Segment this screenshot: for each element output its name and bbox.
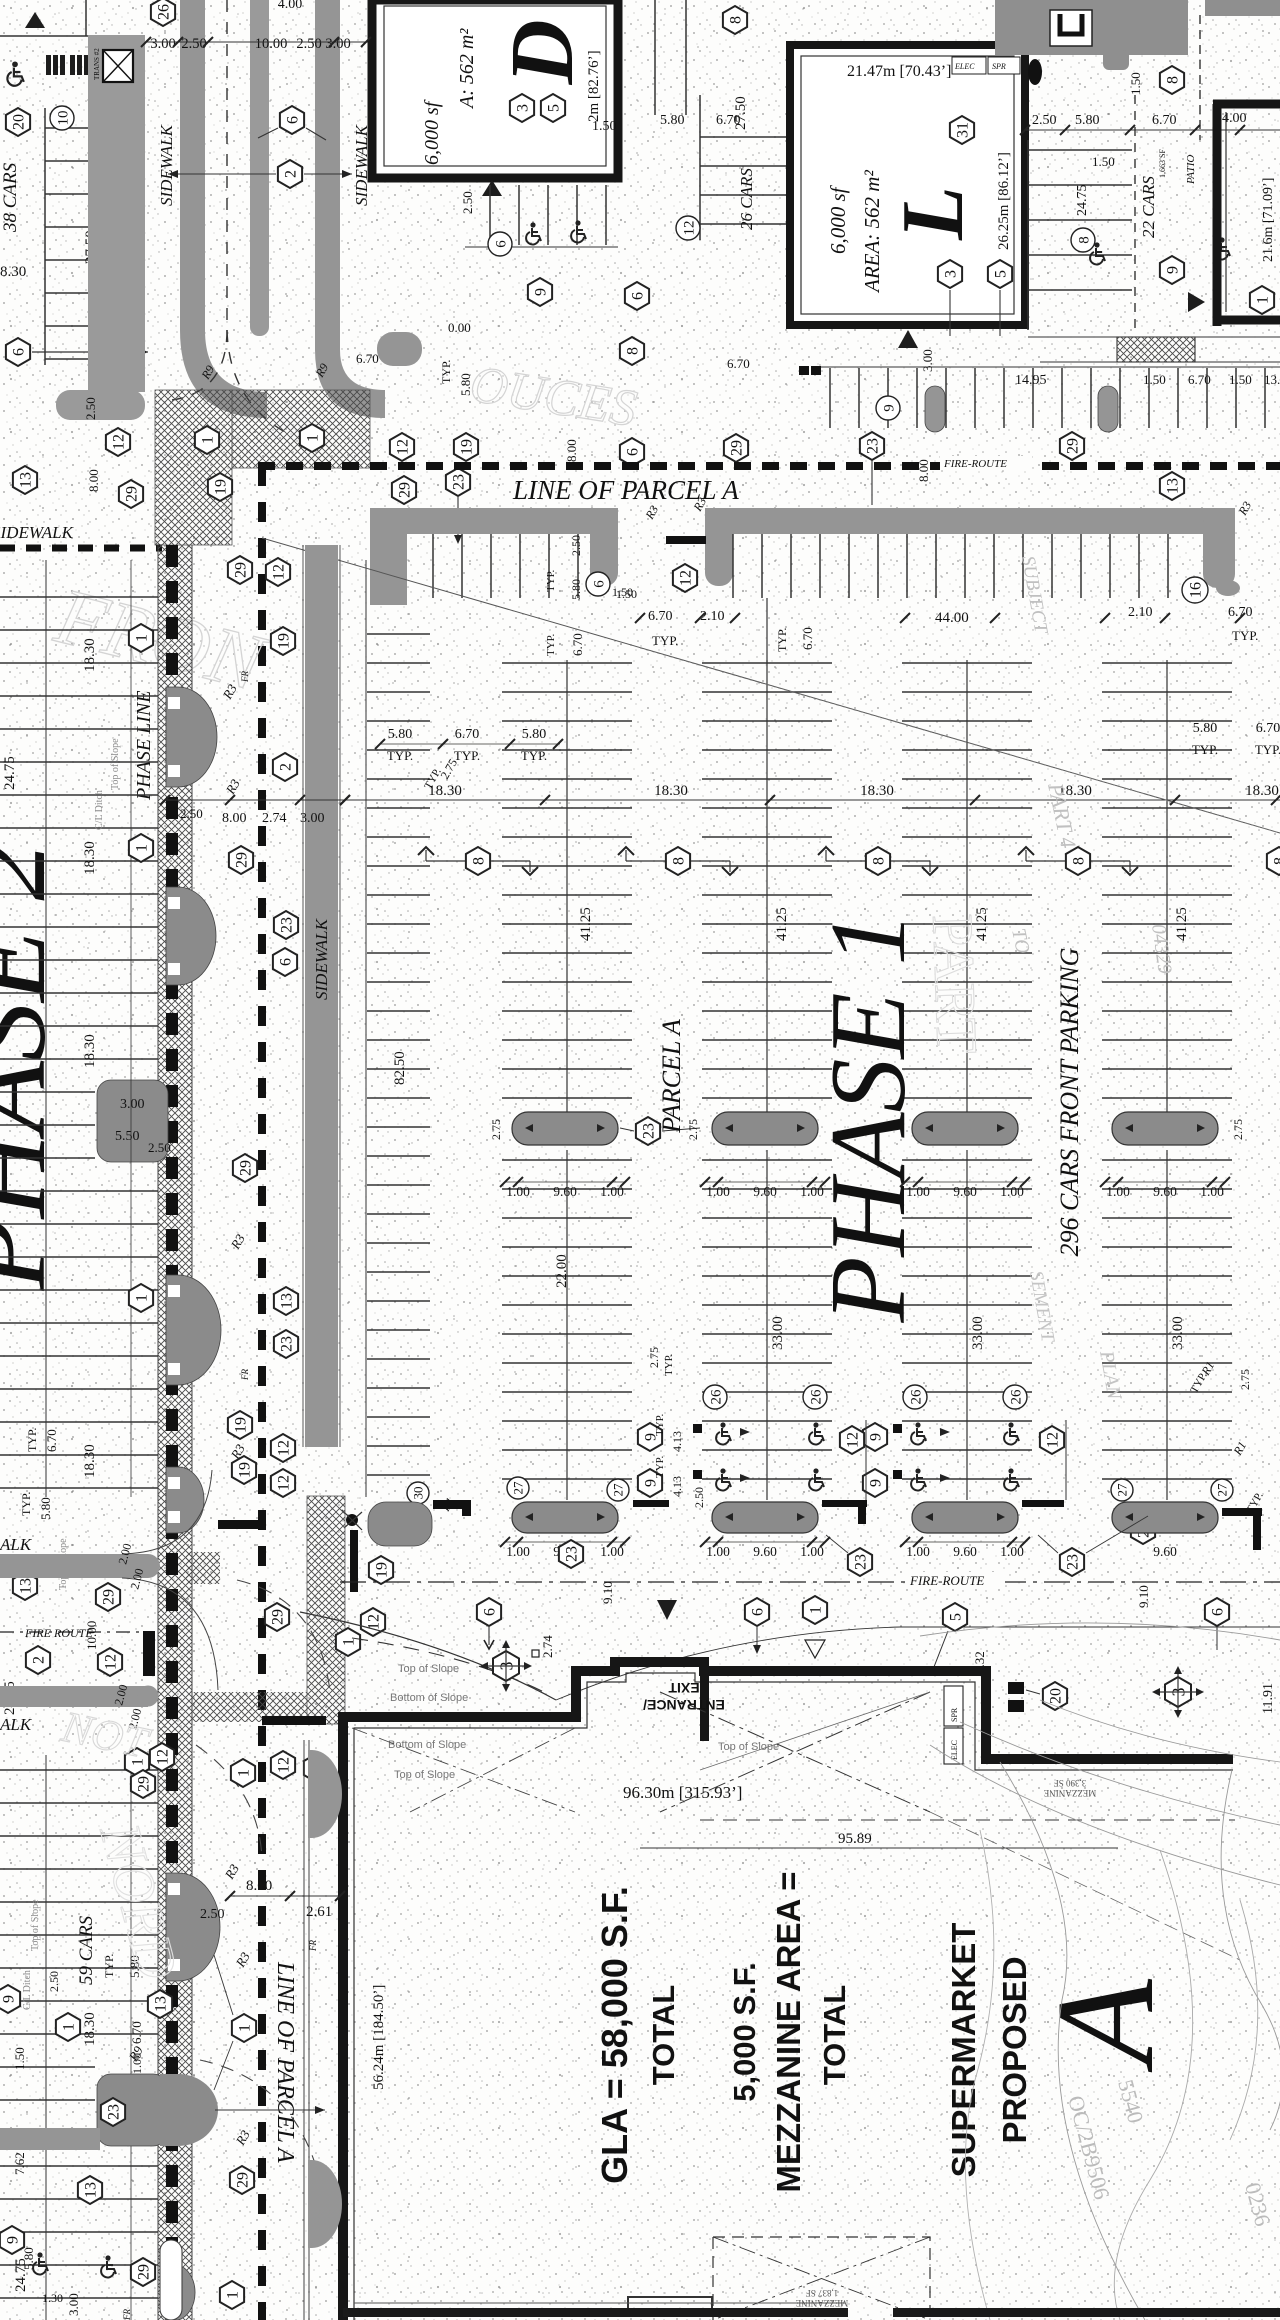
svg-text:13: 13 [83,2182,100,2198]
svg-text:2.75: 2.75 [489,1119,503,1140]
svg-text:TRANS #2: TRANS #2 [93,48,101,80]
svg-text:1: 1 [236,1769,253,1777]
svg-text:1.30: 1.30 [42,2291,63,2305]
svg-text:5.80: 5.80 [660,113,685,128]
svg-text:41.25: 41.25 [578,907,594,941]
svg-text:27: 27 [611,1483,626,1497]
svg-text:FR: FR [240,671,250,683]
svg-text:A: A [1028,1979,1183,2073]
svg-text:1: 1 [134,634,151,642]
svg-text:C/L Ditch: C/L Ditch [22,1970,33,2010]
svg-text:5,000 S.F.: 5,000 S.F. [727,1962,762,2102]
svg-text:9.60: 9.60 [1153,1184,1177,1199]
svg-text:19: 19 [374,1562,391,1578]
svg-text:5.80: 5.80 [569,579,583,600]
svg-text:9: 9 [868,1479,885,1487]
svg-text:1: 1 [200,436,217,444]
svg-text:FR: FR [122,2309,132,2320]
svg-text:8: 8 [871,857,888,865]
svg-text:3.00: 3.00 [920,349,935,372]
svg-text:5: 5 [948,1613,965,1621]
svg-text:2.75: 2.75 [647,1347,661,1368]
svg-text:Top of Slope: Top of Slope [110,738,121,790]
svg-text:19: 19 [233,1417,250,1433]
svg-text:12: 12 [271,564,288,580]
svg-text:9.10: 9.10 [600,1581,615,1604]
svg-text:2.50: 2.50 [1032,113,1057,128]
svg-text:22.00: 22.00 [554,1254,570,1288]
svg-text:8.00: 8.00 [86,469,101,492]
svg-text:23: 23 [1065,1554,1082,1570]
svg-text:1.00: 1.00 [1106,1184,1130,1199]
svg-text:5.50: 5.50 [115,1129,140,1144]
svg-text:TOTAL: TOTAL [817,1985,852,2085]
svg-text:18.30: 18.30 [82,638,98,672]
svg-text:1.00: 1.00 [506,1184,530,1199]
svg-text:7.62: 7.62 [12,2152,27,2175]
svg-text:27: 27 [1215,1483,1230,1497]
svg-text:1: 1 [225,2291,242,2299]
svg-text:19: 19 [459,439,476,455]
svg-text:23: 23 [279,917,296,933]
svg-text:1.00: 1.00 [906,1544,930,1559]
svg-text:56.24m [184.50’]: 56.24m [184.50’] [371,1985,387,2090]
svg-text:6: 6 [591,580,607,588]
svg-text:ELEC: ELEC [950,1740,959,1760]
svg-text:SPR: SPR [992,62,1006,71]
svg-text:27: 27 [1115,1483,1130,1497]
svg-text:26: 26 [1008,1389,1024,1405]
svg-text:5: 5 [993,270,1010,278]
svg-text:2.50: 2.50 [200,1907,225,1922]
svg-text:6.70: 6.70 [1188,372,1211,387]
svg-text:2.50: 2.50 [460,191,475,214]
svg-text:8.00: 8.00 [222,811,247,826]
svg-text:23: 23 [865,438,882,454]
svg-text:2.50: 2.50 [148,1140,171,1155]
svg-text:12: 12 [276,1440,293,1456]
svg-text:Top of Slope: Top of Slope [30,1899,41,1951]
svg-text:95.89: 95.89 [838,1831,872,1847]
svg-text:5.80: 5.80 [388,727,413,742]
svg-text:GLA = 58,000 S.F.: GLA = 58,000 S.F. [594,1886,635,2184]
svg-text:1.50: 1.50 [612,585,633,599]
svg-text:11.91: 11.91 [1261,1683,1276,1714]
svg-text:TYP.: TYP. [1232,628,1258,643]
svg-text:19: 19 [213,479,230,495]
svg-text:23: 23 [106,2104,123,2120]
svg-text:23: 23 [279,1336,296,1352]
svg-text:2.61: 2.61 [306,1904,332,1920]
svg-text:6: 6 [285,116,302,124]
svg-text:FR: FR [240,1369,250,1381]
svg-text:SIDEWALK: SIDEWALK [157,123,176,206]
svg-text:13: 13 [18,1578,35,1594]
svg-text:12: 12 [681,221,697,236]
svg-text:1.50: 1.50 [1128,72,1143,95]
svg-text:41.25: 41.25 [1174,907,1190,941]
svg-text:18.30: 18.30 [82,1034,98,1068]
svg-text:5: 5 [546,104,563,112]
svg-text:6: 6 [1210,1608,1227,1616]
svg-text:6: 6 [482,1608,499,1616]
svg-text:13: 13 [279,1293,296,1309]
svg-text:6.70: 6.70 [44,1429,59,1452]
svg-text:2m [82.76’]: 2m [82.76’] [586,50,602,122]
svg-text:6,000 sf: 6,000 sf [826,184,850,254]
svg-text:296 CARS FRONT PARKING: 296 CARS FRONT PARKING [1055,947,1084,1256]
svg-text:3: 3 [943,270,960,278]
svg-text:26: 26 [708,1389,724,1405]
svg-text:6: 6 [625,448,642,456]
svg-text:SIDEWALK: SIDEWALK [312,917,331,1000]
svg-text:2.50: 2.50 [83,397,98,420]
svg-text:13: 13 [1165,478,1182,494]
svg-text:PART: PART [920,913,990,1055]
svg-text:5.80: 5.80 [1193,721,1218,736]
svg-text:3,390 SF: 3,390 SF [1054,1778,1087,1788]
svg-text:8: 8 [728,16,745,24]
svg-text:6.70: 6.70 [129,2021,144,2044]
svg-text:5.80: 5.80 [522,727,547,742]
svg-text:33.00: 33.00 [770,1316,786,1350]
svg-text:23: 23 [641,1123,658,1139]
svg-text:26 CARS: 26 CARS [737,168,756,230]
svg-text:PARCEL A: PARCEL A [657,1019,686,1134]
svg-text:6.70: 6.70 [356,351,379,366]
svg-text:2.50: 2.50 [180,806,203,821]
svg-text:1: 1 [134,1294,151,1302]
svg-text:26: 26 [908,1389,924,1405]
svg-text:2.10: 2.10 [700,609,725,624]
svg-text:23: 23 [853,1554,870,1570]
svg-text:12: 12 [678,570,695,586]
svg-text:13: 13 [18,472,35,488]
svg-text:PHASE LINE: PHASE LINE [133,691,155,801]
svg-text:6: 6 [11,348,28,356]
svg-text:19: 19 [237,1462,254,1478]
svg-text:33.00: 33.00 [970,1316,986,1350]
svg-text:4.13: 4.13 [670,1476,684,1497]
svg-text:4.13: 4.13 [670,1431,684,1452]
svg-text:6.70: 6.70 [570,633,585,656]
svg-text:6.70: 6.70 [1256,721,1280,736]
svg-text:18.30: 18.30 [654,783,688,799]
svg-text:10: 10 [55,111,71,126]
svg-text:1.00: 1.00 [506,1544,530,1559]
svg-text:8.30: 8.30 [0,264,26,280]
svg-text:3.00: 3.00 [66,2293,81,2316]
svg-text:3: 3 [515,104,532,112]
svg-text:26.25m [86.12’]: 26.25m [86.12’] [996,152,1012,250]
svg-text:TYP.: TYP. [19,1492,33,1516]
svg-text:6.70: 6.70 [455,727,480,742]
svg-text:PHASE 1: PHASE 1 [809,912,928,1324]
svg-text:1.50: 1.50 [12,2047,27,2070]
svg-text:26: 26 [156,4,173,20]
svg-text:Bottom of Slope: Bottom of Slope [390,1692,468,1704]
svg-text:24.75: 24.75 [2,756,18,790]
svg-text:18.30: 18.30 [1245,783,1279,799]
svg-text:ELEC: ELEC [954,62,975,71]
svg-text:TOTAL: TOTAL [646,1985,681,2085]
svg-text:4.00: 4.00 [278,0,303,12]
svg-text:2.75: 2.75 [1238,1369,1252,1390]
svg-text:29: 29 [124,486,141,502]
svg-text:2.50: 2.50 [692,1487,706,1508]
svg-text:ALK: ALK [0,1535,33,1554]
svg-text:Top of Slope: Top of Slope [394,1769,455,1781]
svg-text:12: 12 [111,434,128,450]
svg-text:LINE OF PARCEL A: LINE OF PARCEL A [272,1961,298,2163]
svg-text:9: 9 [1165,266,1182,274]
svg-text:TYP.: TYP. [654,1413,666,1436]
svg-text:12: 12 [845,1432,862,1448]
svg-text:C/L Ditch: C/L Ditch [94,790,105,830]
svg-text:2.50: 2.50 [296,36,321,52]
svg-text:TYP.: TYP. [1192,742,1218,757]
svg-text:TYP.: TYP. [102,1954,116,1978]
svg-text:3.00: 3.00 [150,36,175,52]
svg-text:10.00: 10.00 [255,36,288,52]
svg-text:2: 2 [278,763,295,771]
svg-text:3.00: 3.00 [120,1097,145,1112]
svg-text:2.50: 2.50 [181,36,206,52]
svg-text:FIRE-ROUTE: FIRE-ROUTE [909,1573,984,1588]
svg-text:13.: 13. [1264,372,1280,387]
svg-text:EXIT: EXIT [668,1680,700,1696]
svg-text:1: 1 [237,2024,254,2032]
svg-text:8.00: 8.00 [246,1878,272,1894]
svg-text:FIRE-ROUTE: FIRE-ROUTE [943,458,1007,470]
svg-text:PATIO: PATIO [1185,155,1197,185]
svg-text:9.60: 9.60 [1153,1544,1177,1559]
svg-text:31: 31 [955,122,972,138]
svg-text:6.70: 6.70 [716,113,741,128]
svg-text:6: 6 [493,240,509,248]
svg-text:TYP.: TYP. [25,1428,39,1452]
svg-text:23: 23 [451,474,468,490]
svg-text:D: D [493,20,592,86]
svg-text:29: 29 [238,1160,255,1176]
svg-text:21.47m [70.43’]: 21.47m [70.43’] [847,63,951,80]
svg-text:TYP.: TYP. [545,569,557,592]
svg-text:ALK: ALK [0,1715,33,1734]
svg-text:12: 12 [155,1749,172,1765]
svg-text:24.75: 24.75 [1075,185,1090,217]
svg-text:9.60: 9.60 [953,1184,977,1199]
svg-text:2: 2 [283,170,300,178]
svg-text:8: 8 [1272,857,1280,865]
svg-text:2.75: 2.75 [686,1119,700,1140]
svg-text:9: 9 [643,1479,660,1487]
svg-text:1.00: 1.00 [706,1544,730,1559]
svg-text:Top of Slope: Top of Slope [398,1663,459,1675]
svg-text:18.30: 18.30 [82,1444,98,1478]
svg-text:2.74: 2.74 [262,811,287,826]
svg-text:29: 29 [234,852,251,868]
svg-text:29: 29 [1065,438,1082,454]
svg-text:5.80: 5.80 [1075,113,1100,128]
svg-text:TYP.: TYP. [439,360,453,384]
svg-text:1: 1 [808,1606,825,1614]
svg-text:TYP.: TYP. [652,633,678,648]
svg-text:27: 27 [511,1481,526,1495]
svg-text:29: 29 [729,440,746,456]
svg-text:9: 9 [5,2236,22,2244]
svg-text:0.00: 0.00 [448,320,471,335]
svg-text:2.50: 2.50 [47,1971,61,1992]
svg-text:SPR: SPR [950,1707,959,1722]
svg-text:12: 12 [276,1757,293,1773]
svg-text:1.50: 1.50 [1143,372,1166,387]
svg-text:9.60: 9.60 [753,1184,777,1199]
svg-text:9: 9 [868,1433,885,1441]
svg-text:SUPERMARKET: SUPERMARKET [945,1923,982,2178]
svg-text:18.30: 18.30 [82,841,98,875]
svg-text:TYP.: TYP. [387,748,413,763]
svg-text:30: 30 [411,1487,426,1500]
svg-text:44.00: 44.00 [935,610,969,626]
svg-text:9: 9 [881,404,897,412]
svg-text:29: 29 [270,1609,287,1625]
svg-text:1: 1 [305,434,322,442]
svg-text:96.30m [315.93’]: 96.30m [315.93’] [623,1783,742,1802]
svg-text:ENTRANCE/: ENTRANCE/ [643,1697,725,1713]
svg-text:8: 8 [1165,76,1182,84]
svg-text:1,663 SF: 1,663 SF [1158,149,1167,178]
svg-text:22 CARS: 22 CARS [1139,176,1158,238]
svg-text:8.00: 8.00 [564,439,579,462]
svg-text:12: 12 [276,1475,293,1491]
svg-text:19: 19 [276,633,293,649]
svg-text:TYP.: TYP. [454,748,480,763]
svg-text:6.70: 6.70 [727,356,750,371]
svg-text:MEZZANINE: MEZZANINE [1043,1788,1096,1798]
svg-text:16: 16 [1188,582,1205,598]
svg-text:6: 6 [630,292,647,300]
svg-text:2.10: 2.10 [1128,605,1153,620]
svg-text:5.80: 5.80 [38,1497,53,1520]
svg-text:29: 29 [101,1589,118,1605]
svg-text:9: 9 [533,288,550,296]
svg-text:TYP.: TYP. [654,1455,666,1478]
svg-text:1.50: 1.50 [1092,154,1115,169]
svg-text:8: 8 [1076,236,1092,244]
svg-text:18.30: 18.30 [82,2012,98,2046]
svg-text:1.50: 1.50 [1229,372,1252,387]
svg-text:TYP.: TYP. [545,633,557,656]
svg-text:L: L [885,186,982,241]
svg-text:2.75: 2.75 [1231,1119,1245,1140]
svg-text:18.30: 18.30 [860,783,894,799]
svg-text:14.95: 14.95 [1015,373,1047,388]
svg-text:29: 29 [136,2264,153,2280]
svg-text:1: 1 [61,2023,78,2031]
svg-text:12: 12 [395,439,412,455]
svg-text:29: 29 [233,562,250,578]
svg-text:Bottom of Slope: Bottom of Slope [388,1739,466,1751]
svg-text:10.00: 10.00 [84,1621,99,1650]
svg-text:9.60: 9.60 [753,1544,777,1559]
svg-text:20: 20 [1048,1688,1065,1704]
svg-text:1.50: 1.50 [592,119,617,134]
svg-text:TYP.: TYP. [521,748,547,763]
svg-text:1: 1 [341,1638,358,1646]
svg-text:6.70: 6.70 [800,627,815,650]
svg-text:Top of Slope: Top of Slope [718,1741,779,1753]
svg-text:TYP.: TYP. [1255,742,1280,757]
svg-text:TYP.: TYP. [663,1353,675,1376]
svg-text:2: 2 [31,1656,48,1664]
svg-text:26: 26 [808,1389,824,1405]
svg-text:1.00: 1.00 [706,1184,730,1199]
svg-text:23: 23 [564,1546,581,1562]
svg-text:20: 20 [11,114,28,130]
svg-text:9.10: 9.10 [1136,1585,1151,1608]
svg-text:82.50: 82.50 [392,1051,408,1085]
svg-text:29: 29 [397,482,414,498]
svg-text:SIDEWALK: SIDEWALK [0,523,75,542]
svg-text:3.00: 3.00 [300,811,325,826]
svg-text:TYP.: TYP. [775,628,789,652]
svg-text:6.70: 6.70 [1152,113,1177,128]
svg-text:FIRE ROUTE: FIRE ROUTE [24,1626,93,1640]
svg-text:MEZZANINE AREA =: MEZZANINE AREA = [770,1871,807,2192]
svg-text:21.6m [71.09’]: 21.6m [71.09’] [1261,178,1276,262]
svg-text:9: 9 [1,1995,18,2003]
svg-text:2.74: 2.74 [540,1635,555,1658]
svg-text:8: 8 [1071,857,1088,865]
svg-text:A: 562 m²: A: 562 m² [456,28,478,110]
svg-text:29: 29 [235,2172,252,2188]
svg-text:9.60: 9.60 [953,1544,977,1559]
svg-text:13: 13 [153,1996,170,2012]
svg-text:8: 8 [625,347,642,355]
svg-text:6.70: 6.70 [648,609,673,624]
svg-text:6,000 sf: 6,000 sf [421,99,443,165]
svg-text:38 CARS: 38 CARS [0,162,21,233]
svg-text:6: 6 [278,958,295,966]
svg-text:33.00: 33.00 [1170,1316,1186,1350]
svg-text:9.60: 9.60 [553,1184,577,1199]
svg-text:12: 12 [1045,1432,1062,1448]
svg-text:6: 6 [750,1608,767,1616]
svg-text:29: 29 [136,1776,153,1792]
svg-text:8: 8 [671,857,688,865]
svg-text:1,837 SF: 1,837 SF [806,2288,839,2298]
svg-text:12: 12 [103,1654,120,1670]
svg-text:AREA: 562 m²: AREA: 562 m² [860,170,884,294]
svg-text:1: 1 [1255,296,1272,304]
svg-text:1: 1 [134,844,151,852]
svg-text:41.25: 41.25 [774,907,790,941]
svg-text:2.50: 2.50 [569,535,583,556]
svg-text:8: 8 [471,857,488,865]
svg-text:59 CARS: 59 CARS [76,1915,97,1985]
